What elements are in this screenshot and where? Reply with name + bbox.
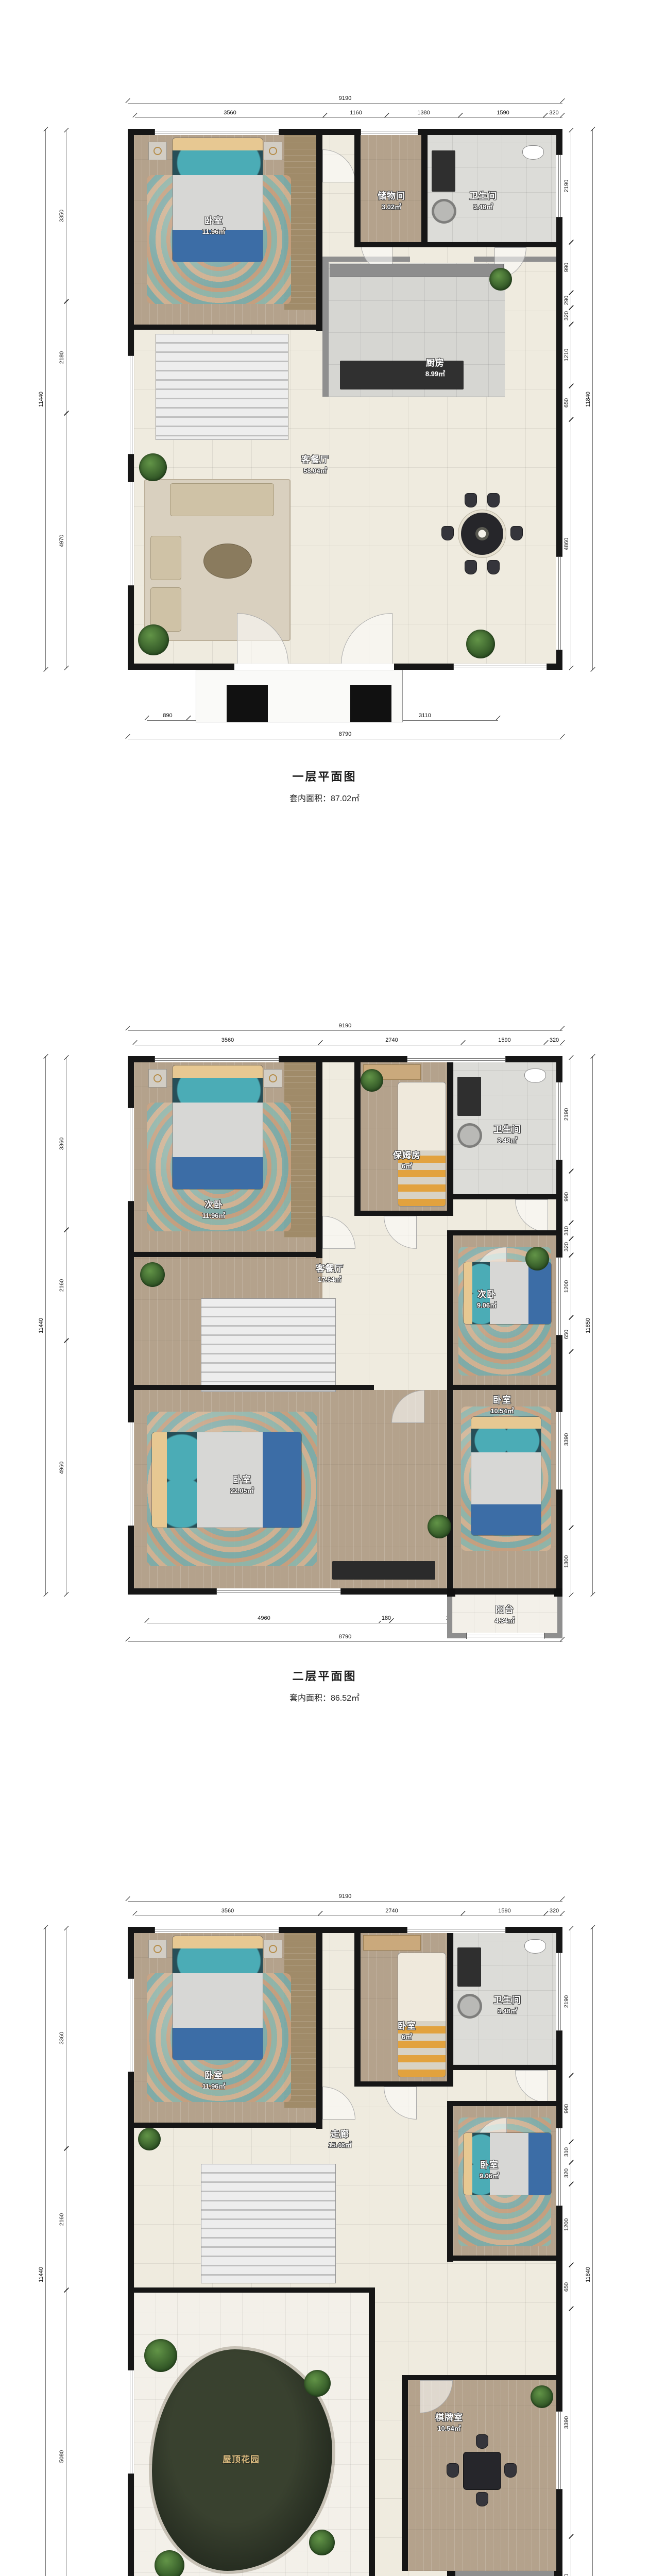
dim-label: 3390 xyxy=(563,2415,570,2430)
window xyxy=(556,1257,562,1335)
dim-label: 11440 xyxy=(38,1317,44,1334)
dimension-line: 8790 xyxy=(128,739,562,739)
dimension-line: 11440 xyxy=(45,1056,46,1595)
dimension-line: 11440 xyxy=(45,1927,46,2576)
floor-title: 一层平面图 xyxy=(0,768,649,784)
dimension-line: 320 xyxy=(571,308,571,324)
room-label: 卧室 6㎡ xyxy=(398,2019,416,2041)
window xyxy=(466,1633,544,1639)
plant xyxy=(531,2385,553,2408)
dim-label: 3350 xyxy=(59,208,65,223)
window xyxy=(128,1978,134,2072)
wall xyxy=(447,2065,556,2070)
chair xyxy=(447,2464,458,2477)
window xyxy=(407,1927,506,1933)
dim-label: 3560 xyxy=(223,110,237,116)
dimension-line: 2740 xyxy=(320,1916,463,1916)
plant xyxy=(140,1262,165,1287)
bed-runner xyxy=(173,1157,263,1189)
column xyxy=(447,2571,455,2576)
room-area: 3.02㎡ xyxy=(382,201,401,211)
plant xyxy=(489,268,512,291)
dimension-line: 11840 xyxy=(592,1927,593,2576)
wall xyxy=(447,1230,562,1235)
wall xyxy=(447,1230,453,1391)
room-area: 9.06㎡ xyxy=(477,1300,497,1310)
entrance-opening xyxy=(234,664,394,670)
wall xyxy=(447,1062,453,1216)
wall xyxy=(447,1933,453,2087)
wall xyxy=(128,1252,322,1257)
room-name: 卫生间 xyxy=(493,1122,521,1135)
room-label: 卧室 22.05㎡ xyxy=(230,1472,254,1495)
room-name: 屋顶花园 xyxy=(223,2452,260,2465)
room-area: 11.96㎡ xyxy=(202,1210,226,1220)
room-area: 58.04㎡ xyxy=(303,465,327,475)
dimension-line: 650 xyxy=(571,1317,571,1351)
room-name: 卧室 xyxy=(233,1472,251,1485)
dim-label: 1160 xyxy=(349,110,363,116)
room-label: 卧室 11.96㎡ xyxy=(202,213,226,236)
plant xyxy=(304,2370,331,2397)
dim-label: 320 xyxy=(563,1241,570,1252)
dim-label: 1590 xyxy=(497,1908,511,1914)
dim-label: 5080 xyxy=(59,2449,65,2463)
room-name: 客餐厅 xyxy=(316,1261,344,1274)
dimension-line: 310 xyxy=(571,2142,571,2162)
dining-table[interactable] xyxy=(461,513,503,555)
room-label: 储物间 3.02㎡ xyxy=(378,189,405,211)
dim-label: 3560 xyxy=(220,1037,235,1043)
room-label: 卧室 9.06㎡ xyxy=(480,2158,499,2180)
room-name: 卧室 xyxy=(204,213,223,226)
room-name: 储物间 xyxy=(378,189,405,201)
balcony-rail xyxy=(447,2571,562,2576)
room-name: 卧室 xyxy=(493,1393,511,1405)
room-name: 走廊 xyxy=(331,2127,349,2140)
dim-label: 3360 xyxy=(59,1136,65,1150)
dim-label: 1300 xyxy=(563,1554,570,1568)
room-area: 4.34㎡ xyxy=(495,1615,515,1625)
dim-label: 9190 xyxy=(338,95,352,101)
bed-pillows xyxy=(173,1948,263,1973)
dim-label: 9190 xyxy=(338,1893,352,1900)
porch-column xyxy=(227,685,268,722)
dim-label: 11440 xyxy=(38,391,44,408)
dim-label: 310 xyxy=(563,1225,570,1236)
dining-chair xyxy=(465,561,476,574)
dim-label: 11440 xyxy=(38,2266,44,2283)
window xyxy=(128,1422,134,1526)
dim-label: 1300 xyxy=(563,2572,570,2576)
wall xyxy=(354,2081,453,2087)
dimension-line: 9190 xyxy=(128,103,562,104)
dimension-line: 320 xyxy=(546,1045,562,1045)
bath-basin xyxy=(457,1994,482,2019)
floor-area-caption: 套内面积：86.52㎡ xyxy=(0,1691,649,1703)
dimension-line: 180 xyxy=(381,1623,391,1623)
dim-label: 8790 xyxy=(338,1634,352,1640)
bed-runner xyxy=(471,1504,541,1535)
single-bed xyxy=(398,1082,446,1207)
dim-label: 11850 xyxy=(585,1317,591,1334)
balcony-rail xyxy=(557,1595,562,1638)
room-name: 厨房 xyxy=(426,355,445,368)
dimension-line: 1590 xyxy=(460,117,545,118)
dim-label: 320 xyxy=(549,1908,560,1914)
master-bedroom xyxy=(322,1390,447,1588)
bath-vanity xyxy=(432,150,455,192)
column xyxy=(554,1588,562,1597)
room-name: 卫生间 xyxy=(469,189,497,201)
bed-headboard xyxy=(173,1065,263,1078)
wall xyxy=(354,1211,453,1216)
room-label: 卧室 10.54㎡ xyxy=(490,1393,514,1415)
room-label: 卫生间 3.48㎡ xyxy=(493,1993,521,2015)
wall xyxy=(128,1385,374,1390)
dimension-line: 1590 xyxy=(463,1916,546,1916)
dim-label: 990 xyxy=(563,2103,570,2114)
room-label: 走廊 15.46㎡ xyxy=(328,2127,352,2149)
nightstand xyxy=(148,1069,167,1088)
dining-chair xyxy=(488,561,499,574)
dimension-line: 8790 xyxy=(128,1641,562,1642)
toilet xyxy=(522,145,544,160)
bed-sheet xyxy=(173,1973,263,2028)
bed-headboard xyxy=(464,1262,472,1324)
dim-label: 2740 xyxy=(384,1908,399,1914)
dim-label: 3560 xyxy=(220,1908,235,1914)
room-label: 屋顶花园 xyxy=(223,2452,260,2465)
window xyxy=(556,1082,562,1160)
dimension-line: 2190 xyxy=(571,1057,571,1171)
plant xyxy=(138,624,169,655)
nightstand xyxy=(148,142,167,160)
double-bed xyxy=(173,138,263,262)
dim-label: 2160 xyxy=(59,1278,65,1292)
dimension-line: 3390 xyxy=(571,2309,571,2536)
window xyxy=(407,1056,506,1062)
chair xyxy=(476,2493,488,2506)
dimension-line: 3360 xyxy=(66,1928,66,2148)
dim-label: 2190 xyxy=(563,1994,570,2009)
dim-label: 2740 xyxy=(384,1037,399,1043)
column xyxy=(447,1588,455,1597)
nightstand xyxy=(264,1069,282,1088)
room-name: 保姆房 xyxy=(393,1148,421,1161)
window xyxy=(453,664,547,670)
plant xyxy=(155,2550,184,2576)
plant xyxy=(139,453,167,481)
wall xyxy=(402,2375,408,2571)
room-area: 3.48㎡ xyxy=(473,201,493,211)
dim-label: 3390 xyxy=(563,1432,570,1447)
dim-label: 2190 xyxy=(563,1107,570,1121)
nightstand xyxy=(264,142,282,160)
dimension-line: 11440 xyxy=(45,129,46,670)
wall xyxy=(316,135,322,331)
wall xyxy=(447,1390,453,1588)
dim-label: 1590 xyxy=(497,1037,511,1043)
wall xyxy=(369,2287,375,2576)
single-bed xyxy=(398,1953,446,2077)
dim-label: 4970 xyxy=(59,533,65,548)
room-name: 卧室 xyxy=(398,2019,416,2031)
dimension-line: 3560 xyxy=(135,117,325,118)
kitchen-counter xyxy=(330,264,504,277)
window xyxy=(216,1588,341,1595)
dim-label: 1210 xyxy=(563,348,570,362)
wall xyxy=(447,2101,453,2262)
dimension-line: 2160 xyxy=(66,1230,66,1341)
window xyxy=(556,2128,562,2206)
room-area: 3.48㎡ xyxy=(498,2006,517,2015)
dimension-line: 2190 xyxy=(571,1928,571,2075)
room-name: 次卧 xyxy=(477,1287,496,1300)
double-bed xyxy=(173,1936,263,2060)
plant xyxy=(309,2530,335,2555)
room-name: 客餐厅 xyxy=(301,452,329,465)
room-label: 卫生间 3.48㎡ xyxy=(493,1122,521,1145)
chair xyxy=(476,2435,488,2448)
dining-chair xyxy=(465,494,476,507)
bed-runner xyxy=(528,2133,551,2195)
plant xyxy=(144,2339,177,2372)
room-area: 11.96㎡ xyxy=(202,2081,226,2091)
floor-plan-sheet: { "floors": [ { "title": "一层平面图", "area_… xyxy=(0,0,649,2576)
window xyxy=(556,2411,562,2489)
wall xyxy=(421,135,428,242)
dimension-line: 11850 xyxy=(592,1056,593,1595)
room-name: 卧室 xyxy=(204,2068,223,2081)
window xyxy=(128,1108,134,1201)
wall xyxy=(354,1933,361,2087)
bed-runner xyxy=(528,1262,551,1324)
room-area: 11.96㎡ xyxy=(202,226,226,236)
plant xyxy=(466,630,495,658)
room-area: 22.05㎡ xyxy=(230,1485,254,1495)
dimension-line: 5080 xyxy=(66,2290,66,2576)
dimension-line: 4860 xyxy=(571,419,571,668)
wall xyxy=(128,325,322,330)
wall xyxy=(447,2256,562,2261)
bed-headboard xyxy=(173,1936,263,1948)
dim-label: 320 xyxy=(549,1037,560,1043)
dimension-line: 1200 xyxy=(571,1255,571,1317)
dimension-line: 3390 xyxy=(571,1351,571,1528)
bed-headboard xyxy=(152,1432,167,1528)
window xyxy=(128,2370,134,2474)
floor-area-caption: 套内面积：87.02㎡ xyxy=(0,791,649,804)
dimension-line: 1590 xyxy=(463,1045,546,1045)
toilet xyxy=(524,1939,546,1954)
staircase[interactable] xyxy=(156,334,288,440)
dim-label: 3360 xyxy=(59,2031,65,2045)
dim-label: 4960 xyxy=(59,1460,65,1475)
dim-label: 2180 xyxy=(59,350,65,364)
dimension-line: 1210 xyxy=(571,324,571,386)
bed-sheet xyxy=(173,1103,263,1157)
double-bed xyxy=(173,1065,263,1189)
double-bed xyxy=(152,1432,301,1528)
room-label: 卫生间 3.48㎡ xyxy=(469,189,497,211)
room-label: 客餐厅 17.64㎡ xyxy=(316,1261,344,1284)
armchair xyxy=(150,536,181,580)
dimension-line: 890 xyxy=(147,720,189,721)
wall xyxy=(316,1062,322,1258)
room-name: 阳台 xyxy=(496,1602,514,1615)
dimension-line: 4960 xyxy=(66,1341,66,1595)
bath-vanity xyxy=(457,1947,481,1987)
window xyxy=(361,129,418,135)
dim-label: 310 xyxy=(563,2146,570,2158)
dim-label: 11840 xyxy=(585,391,591,408)
dim-label: 320 xyxy=(563,2167,570,2179)
column xyxy=(554,2571,562,2576)
room-area: 10.54㎡ xyxy=(490,1405,514,1415)
dimension-line: 9190 xyxy=(128,1901,562,1902)
wall xyxy=(447,1385,562,1390)
dimension-line: 320 xyxy=(571,1239,571,1255)
dim-label: 1200 xyxy=(563,2217,570,2231)
dim-label: 3110 xyxy=(418,713,432,719)
dim-label: 2190 xyxy=(563,179,570,193)
wall xyxy=(354,242,556,247)
dimension-line: 1160 xyxy=(325,117,387,118)
wall xyxy=(447,2101,562,2106)
wall xyxy=(354,1062,361,1216)
staircase[interactable] xyxy=(201,2164,336,2283)
wall xyxy=(128,2287,375,2293)
room-area: 8.99㎡ xyxy=(425,368,445,378)
double-bed xyxy=(471,1417,541,1535)
game-table[interactable] xyxy=(464,2452,501,2489)
dimension-line: 9190 xyxy=(128,1030,562,1031)
dim-label: 890 xyxy=(162,713,173,719)
window xyxy=(556,556,562,650)
dimension-line: 990 xyxy=(571,2075,571,2142)
dimension-line: 2190 xyxy=(571,130,571,242)
dimension-line: 650 xyxy=(571,2265,571,2309)
window xyxy=(556,155,562,217)
dim-label: 4960 xyxy=(257,1615,271,1621)
window xyxy=(556,1412,562,1490)
dim-label: 1200 xyxy=(563,1279,570,1293)
dimension-line: 1300 xyxy=(571,2536,571,2576)
dining-chair xyxy=(442,527,453,540)
room-area: 9.06㎡ xyxy=(480,2171,499,2180)
window xyxy=(155,129,279,135)
room-area: 15.46㎡ xyxy=(328,2140,352,2149)
dimension-line: 650 xyxy=(571,386,571,419)
dim-label: 990 xyxy=(563,1191,570,1202)
window xyxy=(155,1927,279,1933)
dimension-line: 990 xyxy=(571,1171,571,1223)
room-label: 次卧 11.96㎡ xyxy=(202,1197,226,1220)
room-name: 次卧 xyxy=(204,1197,223,1210)
room-name: 卧室 xyxy=(480,2158,499,2171)
bed-sheet xyxy=(471,1452,541,1504)
dimension-line: 3360 xyxy=(66,1057,66,1230)
dimension-line: 320 xyxy=(546,1916,562,1916)
window xyxy=(556,1953,562,2031)
chair xyxy=(505,2464,516,2477)
dimension-line: 290 xyxy=(571,293,571,308)
dim-label: 8790 xyxy=(338,731,352,737)
window xyxy=(128,355,134,454)
dimension-line: 3350 xyxy=(66,130,66,301)
wall xyxy=(447,1194,556,1199)
room-label: 卧室 11.96㎡ xyxy=(202,2068,226,2091)
dimension-line: 1200 xyxy=(571,2184,571,2265)
room-name: 卫生间 xyxy=(493,1993,521,2006)
wall xyxy=(402,2375,562,2380)
dimension-line: 1300 xyxy=(571,1528,571,1595)
dim-label: 650 xyxy=(563,397,570,408)
dimension-line: 310 xyxy=(571,1223,571,1239)
dimension-line: 3560 xyxy=(135,1045,320,1045)
sofa xyxy=(170,483,274,516)
window xyxy=(155,1056,279,1062)
dimension-line: 1380 xyxy=(387,117,460,118)
dim-label: 290 xyxy=(563,294,570,306)
nightstand xyxy=(148,1940,167,1958)
wall xyxy=(128,1588,562,1595)
dimension-line: 2180 xyxy=(66,301,66,413)
staircase[interactable] xyxy=(201,1298,336,1392)
floor-title: 二层平面图 xyxy=(0,1667,649,1684)
toilet xyxy=(524,1069,546,1083)
dim-label: 4860 xyxy=(563,536,570,551)
dim-label: 9190 xyxy=(338,1023,352,1029)
dim-label: 990 xyxy=(563,262,570,273)
wall xyxy=(316,1933,322,2129)
dimension-line: 320 xyxy=(545,117,562,118)
bed-headboard xyxy=(464,2133,472,2195)
bed-runner xyxy=(263,1432,301,1528)
bath-basin xyxy=(432,199,456,224)
porch-column xyxy=(350,685,391,722)
dimension-line: 3560 xyxy=(135,1916,320,1916)
single-bed xyxy=(464,2133,551,2195)
room-area: 3.48㎡ xyxy=(498,1135,517,1145)
room-label: 棋牌室 10.54㎡ xyxy=(435,2410,463,2433)
room-label: 阳台 4.34㎡ xyxy=(495,1602,515,1625)
desk xyxy=(363,1935,421,1951)
dimension-line: 2160 xyxy=(66,2148,66,2290)
dim-label: 650 xyxy=(563,2281,570,2292)
dining-chair xyxy=(511,527,522,540)
coffee-table xyxy=(203,544,252,579)
dimension-line: 2740 xyxy=(320,1045,463,1045)
bath-basin xyxy=(457,1123,482,1148)
dimension-line: 4970 xyxy=(66,413,66,668)
room-area: 6㎡ xyxy=(402,2031,412,2041)
dimension-line: 990 xyxy=(571,242,571,293)
plant xyxy=(525,1247,549,1270)
dim-label: 11840 xyxy=(585,2266,591,2283)
room-name: 棋牌室 xyxy=(435,2410,463,2423)
dim-label: 320 xyxy=(548,110,559,116)
dimension-line: 320 xyxy=(571,2162,571,2184)
dimension-line: 11840 xyxy=(592,129,593,670)
plant xyxy=(428,1515,451,1538)
room-area: 10.54㎡ xyxy=(437,2423,461,2433)
room-label: 客餐厅 58.04㎡ xyxy=(301,452,329,475)
wall xyxy=(322,257,329,397)
dim-label: 650 xyxy=(563,1329,570,1340)
plant xyxy=(138,2128,161,2150)
